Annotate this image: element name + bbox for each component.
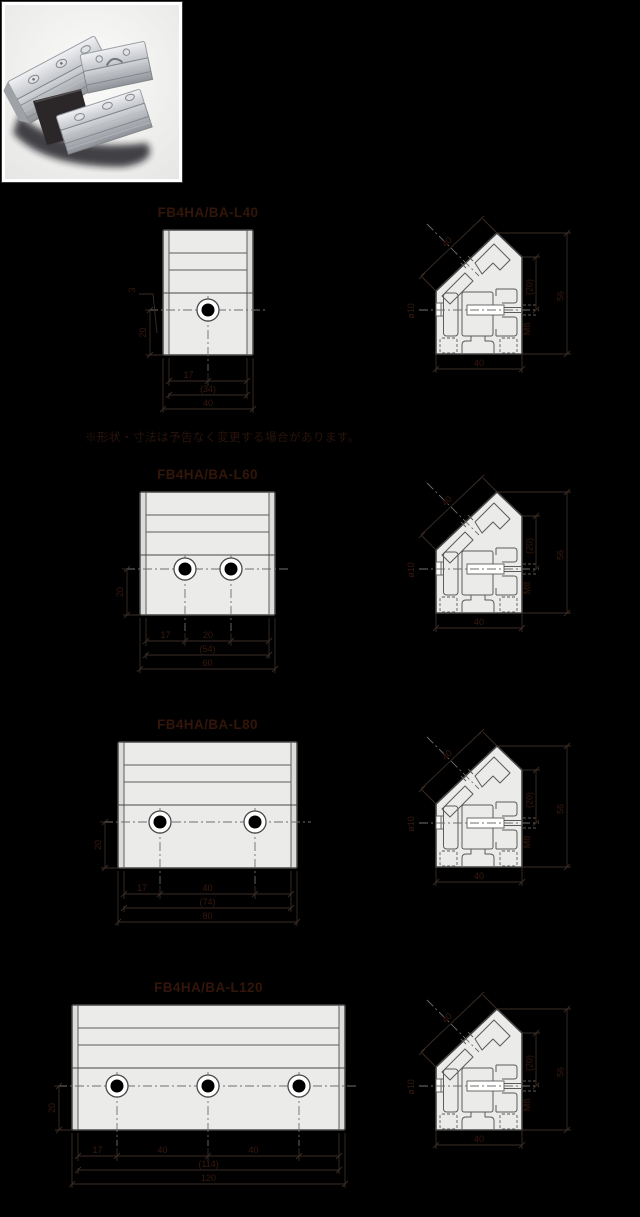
dimension-text: (20) [525,538,535,554]
dimension-text: 56 [556,550,566,560]
dimension-text: 40 [248,1145,258,1155]
dimension-text: 40 [474,1134,484,1144]
dimension-text: 20 [115,587,125,597]
side-view-drawing: 40(20)5640ø10M8 [383,703,577,913]
catalog-page: ※形状・寸法は予告なく変更する場合があります。 FB4HA/BA-L4017(3… [0,0,640,1217]
dimension-text: 40 [474,871,484,881]
dimension-text: 17 [160,630,170,640]
dimension-text: M8 [522,582,532,595]
dimension-text: 20 [138,327,148,337]
dimension-text: 60 [202,658,212,668]
note-text: ※形状・寸法は予告なく変更する場合があります。 [85,429,360,445]
side-view-drawing: 40(20)5640ø10M8 [383,449,577,659]
left-slot-hole [436,816,441,829]
dimension-text: 56 [556,804,566,814]
dimension-text: 40 [474,617,484,627]
dimension-text: 56 [556,291,566,301]
dimension-text: ø10 [406,562,416,578]
dimension-text: 3 [127,287,137,292]
left-slot-hole [436,562,441,575]
dimension-text: M8 [522,323,532,336]
dimension-text: (114) [198,1159,218,1169]
dimension-text: 20 [203,630,213,640]
dimension-text: 40 [157,1145,167,1155]
dimension-text: (54) [199,644,215,654]
front-view-body [140,492,275,615]
front-view-drawing: 1720(54)6020 [92,474,305,689]
front-view-drawing: 1740(74)8020 [70,724,327,942]
product-photo-illustration [5,5,179,179]
dimension-text: M8 [522,836,532,849]
side-view-drawing: 40(20)5640ø10M8 [383,190,577,400]
dimension-text: 20 [47,1103,57,1113]
dimension-text: 20 [93,840,103,850]
dimension-text: 17 [137,883,147,893]
dimension-text: 40 [203,398,213,408]
dimension-text: 80 [202,911,212,921]
dimension-text: ø10 [406,1079,416,1095]
dimension-text: 17 [183,370,193,380]
dimension-text: ø10 [406,303,416,319]
front-view-drawing: 17(34)40203 [115,212,283,429]
left-slot-hole [436,1079,441,1092]
dimension-text: (20) [525,1055,535,1071]
dimension-text: 56 [556,1067,566,1077]
dimension-text: 40 [202,883,212,893]
dimension-text: ø10 [406,816,416,832]
dimension-text: 40 [474,358,484,368]
front-view-drawing: 174040(114)12020 [24,987,375,1204]
dimension-text: (34) [200,384,216,394]
dimension-text: (20) [525,279,535,295]
dimension-text: (74) [199,897,215,907]
dimension-text: (20) [525,792,535,808]
dimension-text: 17 [92,1145,102,1155]
side-view-drawing: 40(20)5640ø10M8 [383,966,577,1176]
left-slot-hole [436,303,441,316]
dimension-text: 120 [201,1173,216,1183]
product-photo [2,2,182,182]
dimension-text: M8 [522,1099,532,1112]
